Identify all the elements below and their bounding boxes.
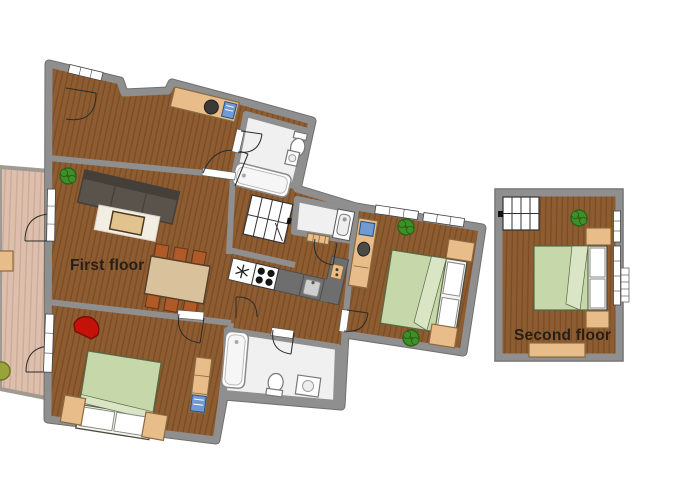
terrace-floor [0,167,50,398]
window-second-floor-upper [614,211,621,242]
second-floor-label: Second floor [514,327,611,344]
storage-box [190,395,206,413]
plant-icon-bedroom-bottom [403,330,419,346]
bathroom-sink-top-icon [285,150,300,166]
floor-plan: First floor Second floor [0,0,700,500]
terrace-table [0,251,13,271]
plant-icon-bedroom-top [398,219,414,235]
kitchen-sink-icon [299,274,324,300]
bed-right-bedroom [380,250,467,335]
staircase-second-floor [498,197,539,230]
floor-plan-canvas: First floor Second floor [0,0,700,500]
bathtub-bottom-icon [221,331,249,389]
pillow [590,279,605,308]
stove-icon [251,263,278,290]
first-floor-label: First floor [70,257,145,274]
window-terrace-door [47,189,56,241]
plant-icon-second-floor [571,210,587,226]
window-second-floor-lower [614,246,621,305]
wall-kitchen-left [229,174,233,254]
nightstand [142,412,168,440]
nightstand [60,395,85,425]
terrace [0,167,50,398]
plant-icon-living [60,168,76,184]
radiator-icon [621,268,629,302]
nightstand [586,228,611,245]
nightstand [429,324,458,348]
bathroom-sink-bottom-icon [295,375,320,397]
nightstand [446,239,475,262]
pillow [590,248,605,277]
window-bedroom-left [43,314,54,372]
bed-second-floor [534,246,607,310]
dresser [529,343,585,357]
nightstand [586,311,609,328]
computer-icon [359,221,375,236]
cutting-board [330,264,344,280]
